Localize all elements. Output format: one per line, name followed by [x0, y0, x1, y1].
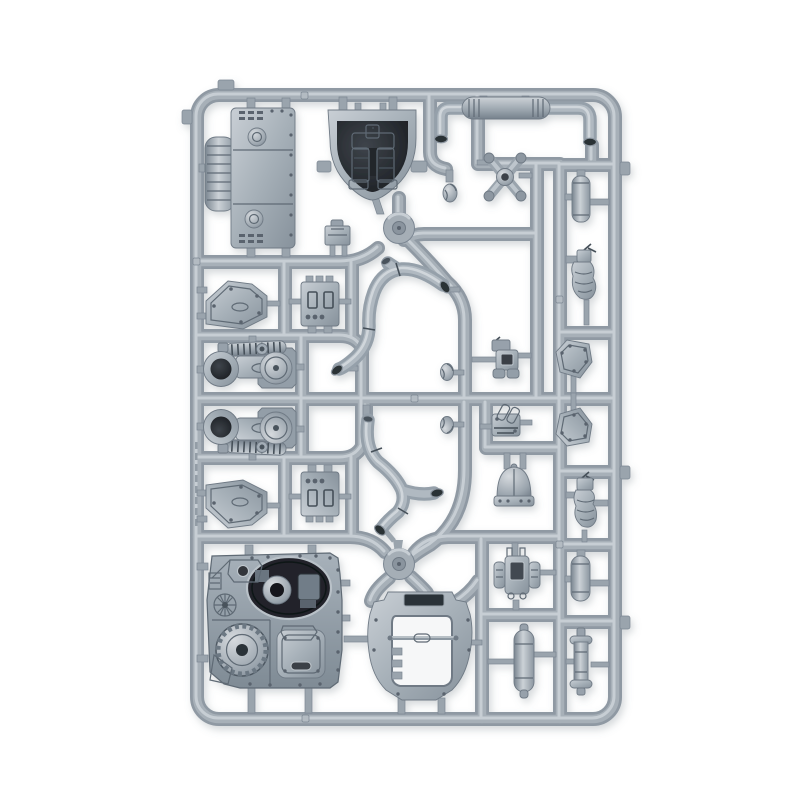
photo-canvas: moulding frame and runner network with t…: [0, 0, 800, 800]
ejector-bump: [193, 258, 200, 265]
round-cap: [248, 128, 266, 146]
pipe-mouth: [584, 138, 597, 146]
top-slot: [404, 594, 444, 606]
side-pod: [494, 562, 505, 588]
ejector-bump: [301, 92, 308, 99]
access-hatch: [277, 626, 325, 678]
ejector-bump: [302, 715, 309, 722]
round-cap: [245, 210, 263, 228]
ejector-bump: [556, 541, 563, 548]
outer-tab: [182, 110, 192, 124]
sprue-photo: moulding frame and runner network with t…: [0, 0, 800, 800]
side-pod: [529, 562, 540, 588]
outer-tab: [620, 616, 630, 629]
ejector-bump: [411, 395, 418, 402]
outer-tab: [218, 80, 234, 90]
injection-hub-top: [384, 213, 415, 244]
outer-tab: [620, 466, 630, 479]
outer-tab: [620, 162, 630, 175]
sunburst-disc: [214, 594, 236, 616]
ejector-bump: [556, 296, 563, 303]
gear-wheel: [216, 624, 268, 676]
flange: [570, 680, 592, 688]
silencer: [462, 97, 550, 119]
figure-head: [577, 250, 591, 262]
pipe-mouth: [435, 135, 448, 143]
